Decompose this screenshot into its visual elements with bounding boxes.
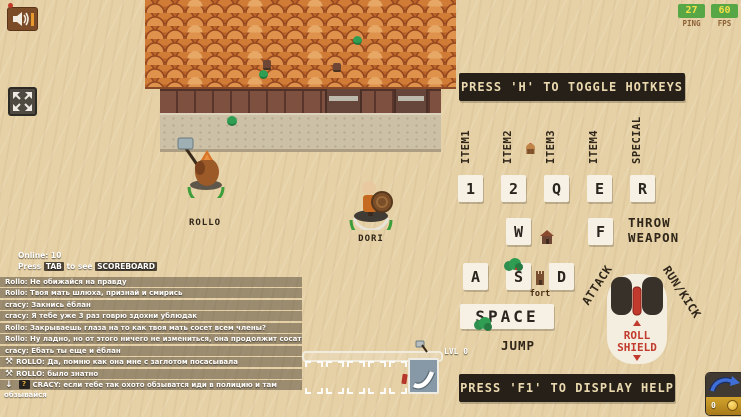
jump-label: JUMP bbox=[492, 338, 544, 353]
notification-dot bbox=[8, 3, 13, 8]
chat-text: Rollo: Не обижайся на правду bbox=[5, 278, 127, 286]
hotbar-slot-empty[interactable] bbox=[326, 361, 344, 394]
shield-horn-icon bbox=[410, 360, 437, 392]
speaker-icon bbox=[8, 8, 37, 30]
chat-text: cracy: Закнись ёблан bbox=[5, 301, 91, 309]
scoreboard-hint-target: SCOREBOARD bbox=[95, 262, 157, 271]
item2-label: ITEM2 bbox=[502, 130, 514, 164]
throw-weapon-label-line2: WEAPON bbox=[628, 230, 679, 245]
mouse-right-button bbox=[642, 277, 663, 315]
level-marker-axe-icon bbox=[415, 340, 428, 353]
shield-label: SHIELD bbox=[617, 341, 657, 354]
shield bbox=[372, 192, 392, 212]
ping-value-badge: 27 bbox=[678, 4, 705, 18]
mouse-left-button bbox=[611, 277, 632, 315]
chat-text: cracy: Я тебе уже 3 раз говрю здохни убл… bbox=[5, 312, 197, 320]
key-r: R bbox=[630, 175, 655, 202]
hotbar-slot-empty[interactable] bbox=[305, 361, 323, 394]
volume-bar bbox=[31, 13, 34, 26]
chat-message: Rollo: Не обижайся на правду bbox=[0, 277, 302, 287]
chat-text: Rollo: Ну ладно, но от этого ничего не и… bbox=[5, 335, 302, 343]
chat-message: ↓?CRACY: если тебе так охото обзыватся и… bbox=[0, 380, 302, 390]
swap-arrow-icon bbox=[706, 373, 741, 397]
hotbar-slot-empty[interactable] bbox=[347, 361, 365, 394]
level-label: LVL 0 bbox=[444, 347, 468, 356]
chat-text: CRACY: если тебе так охото обзыватся иди… bbox=[33, 381, 277, 389]
coin-count: 0 bbox=[711, 401, 716, 410]
ping-label: PING bbox=[678, 19, 705, 28]
chat-message-wrap: обзывайся bbox=[4, 391, 47, 399]
building-roof bbox=[145, 0, 456, 89]
scoreboard-hint: Press TAB to see SCOREBOARD bbox=[18, 262, 157, 271]
fort-icon bbox=[534, 268, 546, 285]
sound-button[interactable] bbox=[7, 7, 38, 31]
chat-text: ROLLO: Да, помню как она мне с заглотом … bbox=[16, 358, 238, 366]
turtle-creature bbox=[353, 36, 362, 45]
item3-label: ITEM3 bbox=[545, 130, 557, 164]
building-door bbox=[325, 89, 362, 113]
key-d: D bbox=[549, 263, 574, 290]
chat-text: cracy: Ебать ты еще и ёблан bbox=[5, 347, 121, 355]
chat-text: ROLLO: было знатно bbox=[16, 370, 98, 378]
fort-label: fort bbox=[517, 289, 563, 299]
down-arrow-icon: ↓ bbox=[5, 380, 13, 390]
roof-item bbox=[333, 63, 341, 72]
help-banner: PRESS 'F1' TO DISPLAY HELP bbox=[459, 374, 675, 402]
hint-middle: to see bbox=[67, 262, 93, 271]
fullscreen-icon bbox=[10, 89, 35, 114]
player-name-label: DORI bbox=[342, 234, 400, 244]
bush-icon bbox=[474, 317, 492, 331]
online-count: Online: 10 bbox=[18, 251, 61, 260]
chat-message: cracy: Ебать ты еще и ёблан bbox=[0, 346, 302, 356]
throw-weapon-label-line1: THROW bbox=[628, 215, 679, 230]
game-viewport: ROLLO DORI bbox=[0, 0, 741, 417]
turtle-creature bbox=[227, 116, 237, 126]
chat-message: ⚒ROLLO: Да, помню как она мне с заглотом… bbox=[0, 357, 302, 367]
house-icon bbox=[539, 229, 555, 245]
hotkeys-banner: PRESS 'H' TO TOGGLE HOTKEYS bbox=[459, 73, 685, 101]
chat-message: Rollo: Закрываешь глаза на то как твоя м… bbox=[0, 323, 302, 333]
player-rollo-sprite bbox=[176, 130, 234, 198]
coin-icon bbox=[727, 400, 738, 411]
key-f: F bbox=[588, 218, 613, 245]
chat-text: Rollo: Твоя мать шлюха, признай и смирис… bbox=[5, 289, 182, 297]
roof-item bbox=[263, 60, 271, 70]
key-a: A bbox=[463, 263, 488, 290]
chat-message: Rollo: Твоя мать шлюха, признай и смирис… bbox=[0, 288, 302, 298]
mouse-wheel bbox=[633, 287, 641, 315]
key-1: 1 bbox=[458, 175, 483, 202]
hotbar-slot-empty[interactable] bbox=[368, 361, 386, 394]
chat-message: cracy: Закнись ёблан bbox=[0, 300, 302, 310]
player-name-label: ROLLO bbox=[176, 218, 234, 228]
chat-message: cracy: Я тебе уже 3 раз говрю здохни убл… bbox=[0, 311, 302, 321]
item4-label: ITEM4 bbox=[588, 130, 600, 164]
chat-text: Rollo: Закрываешь глаза на то как твоя м… bbox=[5, 324, 266, 332]
axe-icon: ⚒ bbox=[5, 357, 13, 367]
door-window bbox=[329, 96, 358, 101]
chat-message: ⚒ROLLO: было знатно bbox=[0, 369, 302, 379]
building-door bbox=[394, 89, 428, 113]
currency-widget[interactable]: 0 bbox=[706, 373, 741, 415]
axe-blade bbox=[178, 138, 193, 149]
mouse-icon: ROLL SHIELD bbox=[606, 273, 668, 365]
hint-prefix: Press bbox=[18, 262, 41, 271]
question-badge-icon: ? bbox=[19, 380, 30, 389]
key-e: E bbox=[587, 175, 612, 202]
player-dori: DORI bbox=[342, 172, 400, 252]
player-dori-sprite bbox=[342, 172, 400, 230]
special-label: SPECIAL bbox=[631, 116, 643, 164]
coin-counter: 0 bbox=[706, 397, 741, 415]
bush-icon bbox=[503, 257, 523, 272]
fps-value-badge: 60 bbox=[711, 4, 738, 18]
muffin-icon bbox=[524, 142, 537, 156]
door-window bbox=[398, 96, 424, 101]
chat-message: Rollo: Ну ладно, но от этого ничего не и… bbox=[0, 334, 302, 344]
key-2: 2 bbox=[501, 175, 526, 202]
hotbar-slot-shield[interactable] bbox=[408, 358, 439, 394]
fps-label: FPS bbox=[711, 19, 738, 28]
player-rollo: ROLLO bbox=[176, 130, 234, 230]
fullscreen-button[interactable] bbox=[8, 87, 37, 116]
key-q: Q bbox=[544, 175, 569, 202]
axe-handle bbox=[185, 147, 198, 166]
tab-key-hint: TAB bbox=[44, 262, 64, 271]
axe-icon: ⚒ bbox=[5, 369, 13, 379]
key-w: W bbox=[506, 218, 531, 245]
item1-label: ITEM1 bbox=[460, 130, 472, 164]
turtle-creature bbox=[259, 70, 268, 79]
